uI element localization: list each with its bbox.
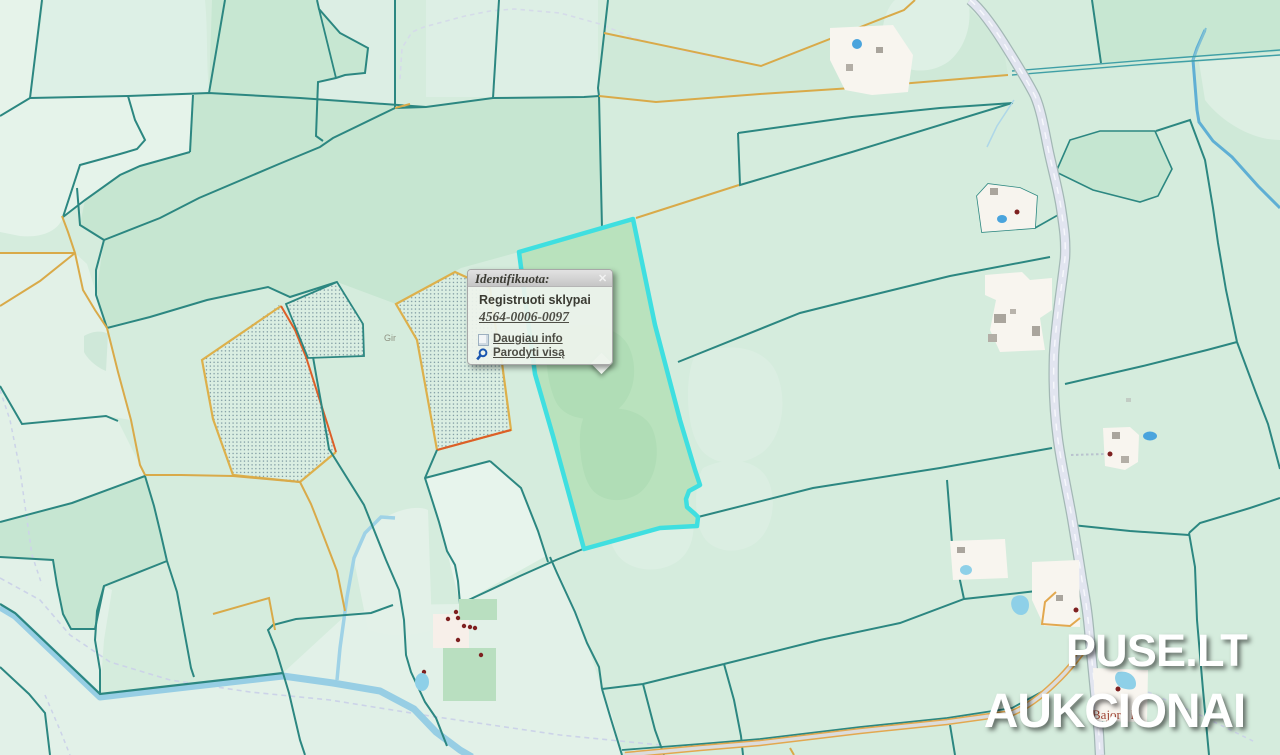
svg-text:Gir: Gir xyxy=(384,333,396,343)
